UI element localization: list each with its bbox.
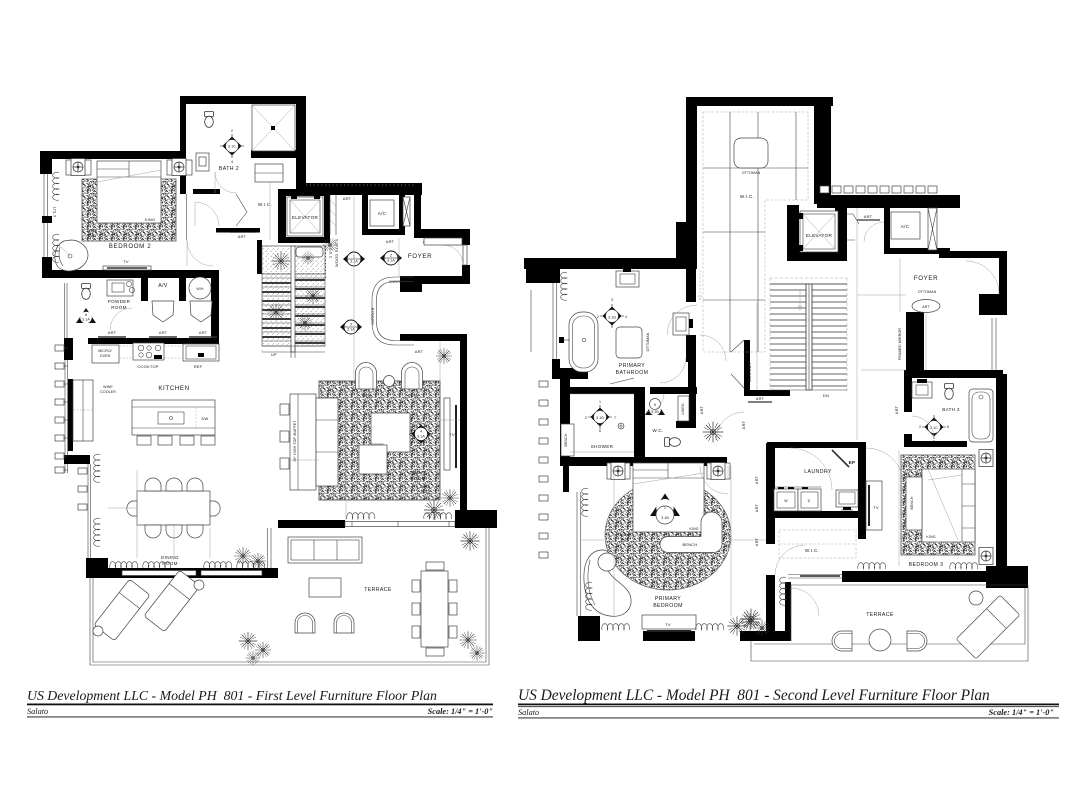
svg-text:2: 2 [585,416,587,420]
svg-text:OVEN: OVEN [100,354,111,358]
svg-text:ART: ART [894,405,899,414]
svg-text:TERRACE: TERRACE [866,612,894,618]
svg-text:X TUT: X TUT [53,206,57,218]
svg-text:REF: REF [194,364,203,369]
svg-text:TV: TV [665,622,671,627]
svg-text:RUG: RUG [421,490,429,494]
svg-text:FOYER: FOYER [408,253,432,260]
svg-text:AREA: AREA [620,533,631,537]
svg-text:6: 6 [947,425,949,429]
svg-text:POWDER: POWDER [108,299,131,304]
svg-text:UP: UP [271,352,277,357]
svg-text:MIRROR: MIRROR [389,279,406,284]
svg-text:BATHROOM: BATHROOM [616,370,649,376]
svg-text:2 X 2: 2 X 2 [328,247,333,258]
svg-text:OTTOMAN: OTTOMAN [742,171,761,175]
svg-text:GREAT: GREAT [410,470,427,475]
svg-text:3.1A: 3.1A [82,318,90,322]
svg-text:W.I.C.: W.I.C. [740,194,754,199]
svg-text:BEDROOM 2: BEDROOM 2 [109,243,152,250]
svg-text:3.1B: 3.1B [661,516,669,520]
svg-text:1: 1 [664,506,666,510]
svg-text:DN: DN [823,393,829,398]
svg-text:TV: TV [873,505,879,510]
svg-text:COOLER: COOLER [100,390,116,394]
svg-text:A/C: A/C [378,211,387,216]
svg-text:ART: ART [108,330,117,335]
svg-text:2: 2 [231,129,233,133]
svg-text:3.1A: 3.1A [387,259,395,263]
svg-text:ART: ART [159,330,168,335]
svg-text:FRAMED MIRROR: FRAMED MIRROR [898,328,902,360]
svg-text:ART: ART [754,475,759,484]
svg-text:ELEVATOR: ELEVATOR [806,233,833,238]
svg-text:DW: DW [201,416,208,421]
svg-text:WOOD SLATS: WOOD SLATS [334,239,339,268]
svg-text:MICRO/: MICRO/ [98,349,112,353]
svg-text:3.1A: 3.1A [350,260,358,264]
svg-text:AREA: AREA [420,485,431,489]
svg-text:3.1A: 3.1A [417,434,425,438]
svg-text:PRIMARY: PRIMARY [655,596,681,602]
svg-text:3.1B: 3.1B [608,315,616,319]
svg-text:ART: ART [199,330,208,335]
svg-text:KING: KING [145,217,156,222]
svg-text:TV: TV [123,259,129,264]
svg-text:Scale: 1/4" = 1'-0": Scale: 1/4" = 1'-0" [989,708,1055,717]
svg-text:ART: ART [343,196,352,201]
svg-text:3: 3 [350,323,352,327]
svg-text:TERRACE: TERRACE [364,587,392,593]
svg-text:BENCH: BENCH [682,542,697,547]
svg-text:RUG: RUG [621,538,629,542]
svg-text:SWVL: SWVL [408,394,419,398]
svg-text:3.1B: 3.1B [651,410,659,414]
svg-text:A/C: A/C [901,224,910,229]
svg-text:ART: ART [386,239,395,244]
svg-text:D: D [808,499,811,503]
svg-text:US Development LLC - Model PH: US Development LLC - Model PH 801 - Firs… [27,688,437,703]
svg-text:ART: ART [754,537,759,546]
svg-text:2: 2 [919,425,921,429]
svg-text:FOYER: FOYER [914,275,938,282]
svg-text:W: W [784,499,788,503]
svg-text:BENCH: BENCH [564,433,568,446]
svg-text:ART: ART [922,305,930,309]
svg-text:DINING: DINING [161,555,179,560]
svg-text:A/V: A/V [158,283,168,289]
svg-text:KITCHEN: KITCHEN [158,385,189,392]
svg-text:7: 7 [933,440,935,444]
svg-text:SHOWER: SHOWER [591,444,614,449]
svg-text:6: 6 [654,403,656,407]
svg-text:OTTOMAN: OTTOMAN [918,290,937,294]
svg-text:W.C.: W.C. [652,428,663,433]
svg-text:COOKTOP: COOKTOP [137,364,158,369]
svg-text:EP: EP [849,460,856,465]
svg-text:W.I.C.: W.I.C. [805,548,819,553]
svg-text:6: 6 [85,313,87,317]
svg-text:3: 3 [611,298,613,302]
svg-text:ELEVATOR: ELEVATOR [292,215,319,220]
svg-text:1: 1 [599,400,601,404]
svg-text:BEDROOM: BEDROOM [653,603,683,609]
svg-text:36" HIGH TOP /BUFFET: 36" HIGH TOP /BUFFET [293,420,297,462]
svg-text:BENCH: BENCH [910,496,914,509]
svg-text:LINEN: LINEN [681,403,685,414]
svg-text:ART: ART [756,396,765,401]
svg-text:TV: TV [449,432,455,437]
svg-text:7: 7 [614,416,616,420]
svg-text:SWVL: SWVL [362,394,373,398]
svg-text:US Development LLC - Model PH: US Development LLC - Model PH 801 - Seco… [518,687,990,704]
svg-text:ART: ART [754,503,759,512]
svg-text:RUG: RUG [88,234,96,238]
svg-text:PRIMARY: PRIMARY [619,363,645,369]
svg-text:KING: KING [926,535,935,539]
svg-text:2: 2 [390,254,392,258]
svg-text:ART: ART [699,405,704,414]
svg-text:ART: ART [415,349,424,354]
svg-text:4: 4 [420,430,422,434]
svg-text:2: 2 [597,315,599,319]
svg-text:4: 4 [231,160,233,164]
svg-text:Salato: Salato [518,708,539,717]
svg-text:MIRROR: MIRROR [370,307,375,324]
svg-text:KING: KING [689,527,698,531]
svg-text:OTTOMAN: OTTOMAN [646,332,650,351]
svg-text:3.1B: 3.1B [596,416,604,420]
svg-text:WINE: WINE [103,385,113,389]
svg-text:AREA: AREA [87,229,98,233]
svg-text:LAUNDRY: LAUNDRY [804,469,832,475]
svg-text:ART: ART [238,234,247,239]
svg-text:W/H: W/H [196,287,204,291]
svg-text:ART: ART [741,420,746,429]
svg-text:CLOSET: CLOSET [747,362,752,382]
svg-text:Salato: Salato [27,707,48,716]
svg-text:Scale: 1/4" = 1'-0": Scale: 1/4" = 1'-0" [428,707,494,716]
svg-text:BEDROOM 3: BEDROOM 3 [909,562,944,568]
svg-text:ART: ART [864,214,873,219]
svg-text:3.1C: 3.1C [930,426,938,430]
svg-text:6: 6 [599,429,601,433]
svg-text:ROOM: ROOM [410,476,426,481]
svg-text:BATH 3: BATH 3 [942,407,960,412]
svg-text:BATH 2: BATH 2 [219,166,239,172]
svg-text:4: 4 [625,315,627,319]
svg-text:3.1C: 3.1C [228,145,236,149]
